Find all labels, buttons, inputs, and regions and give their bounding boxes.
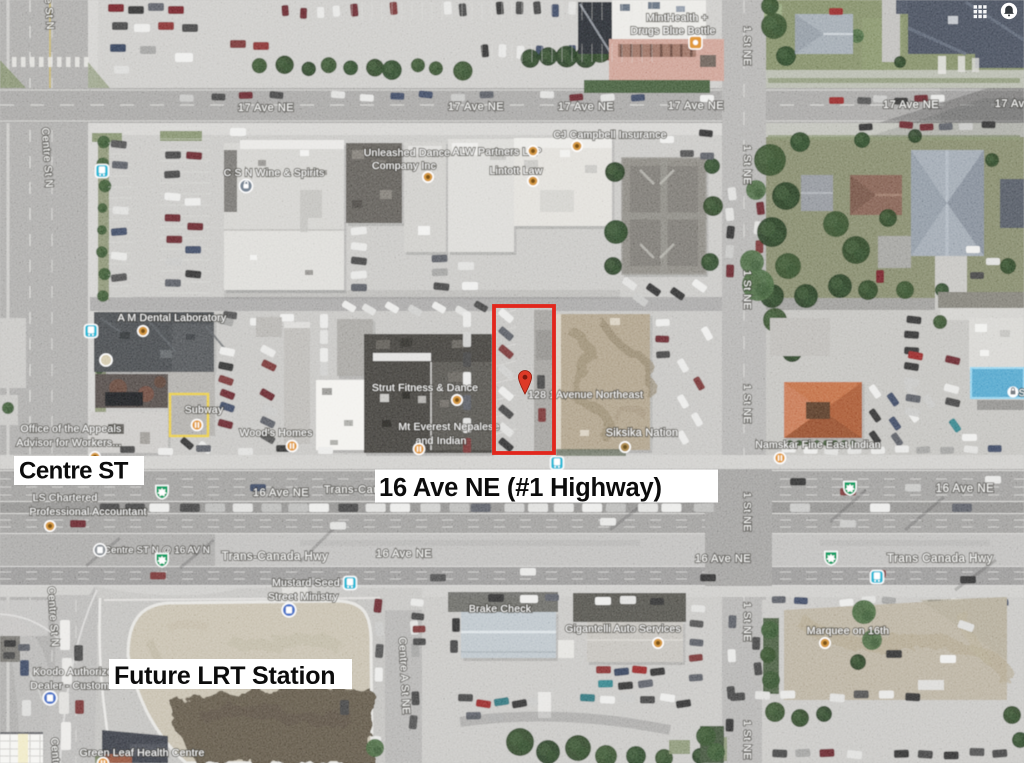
svg-text:Strut Fitness & Dance: Strut Fitness & Dance [372,382,478,394]
svg-text:Wood's Homes: Wood's Homes [239,427,312,439]
svg-text:Marquee on 16th: Marquee on 16th [807,625,889,637]
svg-text:MintHealth +: MintHealth + [646,12,708,24]
svg-text:17 Ave NE: 17 Ave NE [668,100,724,112]
svg-text:16 Ave NE (#1 Highway): 16 Ave NE (#1 Highway) [379,474,662,502]
svg-text:Gigantelli Auto Services: Gigantelli Auto Services [565,623,681,635]
svg-text:1 St NE: 1 St NE [741,270,753,310]
svg-text:Drugs Blue Bottle: Drugs Blue Bottle [630,25,715,37]
svg-text:Professional Accountant: Professional Accountant [29,506,146,518]
svg-text:Trans-Canada Hwy: Trans-Canada Hwy [222,551,329,563]
svg-text:Advisor for Workers...: Advisor for Workers... [16,437,121,449]
svg-text:17 Ave NE: 17 Ave NE [448,101,504,113]
svg-text:Mt Everest Nepalese: Mt Everest Nepalese [398,421,499,433]
svg-text:CJ Campbell Insurance: CJ Campbell Insurance [553,129,666,141]
svg-text:17 Ave NE: 17 Ave NE [883,99,939,111]
svg-text:Centre ST: Centre ST [19,458,129,485]
svg-text:Dealer - Custom: Dealer - Custom [30,680,109,692]
svg-text:1 St NE: 1 St NE [741,384,753,424]
svg-text:128 1: 128 1 [528,389,555,401]
svg-text:Street Ministry: Street Ministry [268,591,339,603]
svg-text:17 Ave NE: 17 Ave NE [238,102,294,114]
svg-text:17 Ave NE: 17 Ave NE [558,101,614,113]
svg-text:Trans Canada Hwy: Trans Canada Hwy [887,553,993,565]
svg-text:Mustard Seed: Mustard Seed [272,577,340,589]
svg-text:Unleashed Dance: Unleashed Dance [364,147,450,159]
svg-text:Future LRT Station: Future LRT Station [114,662,335,690]
svg-text:Subway: Subway [185,404,224,416]
svg-text:Namskar Fine East Indian: Namskar Fine East Indian [755,439,881,451]
svg-text:1 St NE: 1 St NE [741,26,753,66]
svg-text:16 Ave NE: 16 Ave NE [695,553,751,565]
svg-text:1 St NE: 1 St NE [741,720,753,760]
svg-text:Siksika Nation: Siksika Nation [606,427,679,439]
svg-text:1 St NE: 1 St NE [741,145,753,185]
svg-text:1 St NE: 1 St NE [741,492,753,532]
svg-text:17 Ave: 17 Ave [995,98,1024,110]
svg-text:Green Leaf Health Centre: Green Leaf Health Centre [79,747,204,759]
svg-text:Koodo Authorize: Koodo Authorize [33,666,113,678]
svg-text:S: S [1019,388,1024,399]
svg-text:Centr: Centr [48,737,62,763]
svg-text:Avenue Northeast: Avenue Northeast [556,389,643,401]
svg-text:e St N: e St N [42,0,56,30]
svg-text:A M Dental Laboratory: A M Dental Laboratory [118,312,227,324]
svg-text:LS Chartered: LS Chartered [33,492,98,504]
svg-text:16 Ave NE: 16 Ave NE [936,483,995,495]
svg-text:16 Ave NE: 16 Ave NE [376,548,432,560]
svg-text:Brake Check: Brake Check [469,603,532,615]
svg-text:Company Inc: Company Inc [372,160,436,172]
svg-text:1 St NE: 1 St NE [741,602,753,642]
svg-text:C S N Wine & Spirits: C S N Wine & Spirits [224,167,325,179]
svg-text:Lintott Law: Lintott Law [490,165,543,177]
svg-text:Office of the Appeals: Office of the Appeals [21,423,122,435]
svg-text:16 Ave NE: 16 Ave NE [253,487,309,499]
